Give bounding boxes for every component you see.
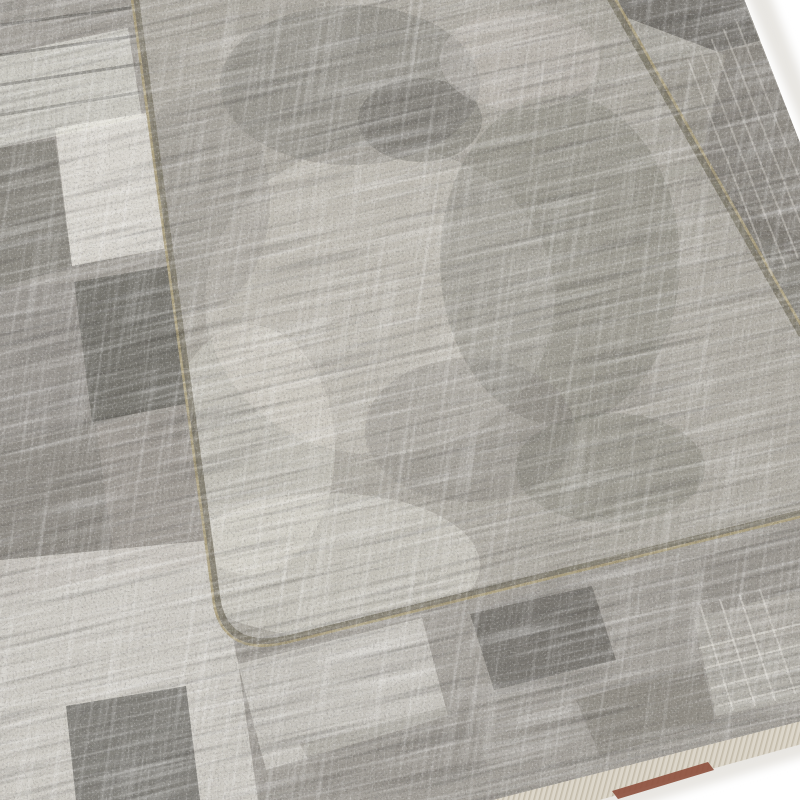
rug xyxy=(0,0,800,800)
rug-product-photo xyxy=(0,0,800,800)
grain-shadows xyxy=(0,0,800,800)
rug-photo-svg xyxy=(0,0,800,800)
